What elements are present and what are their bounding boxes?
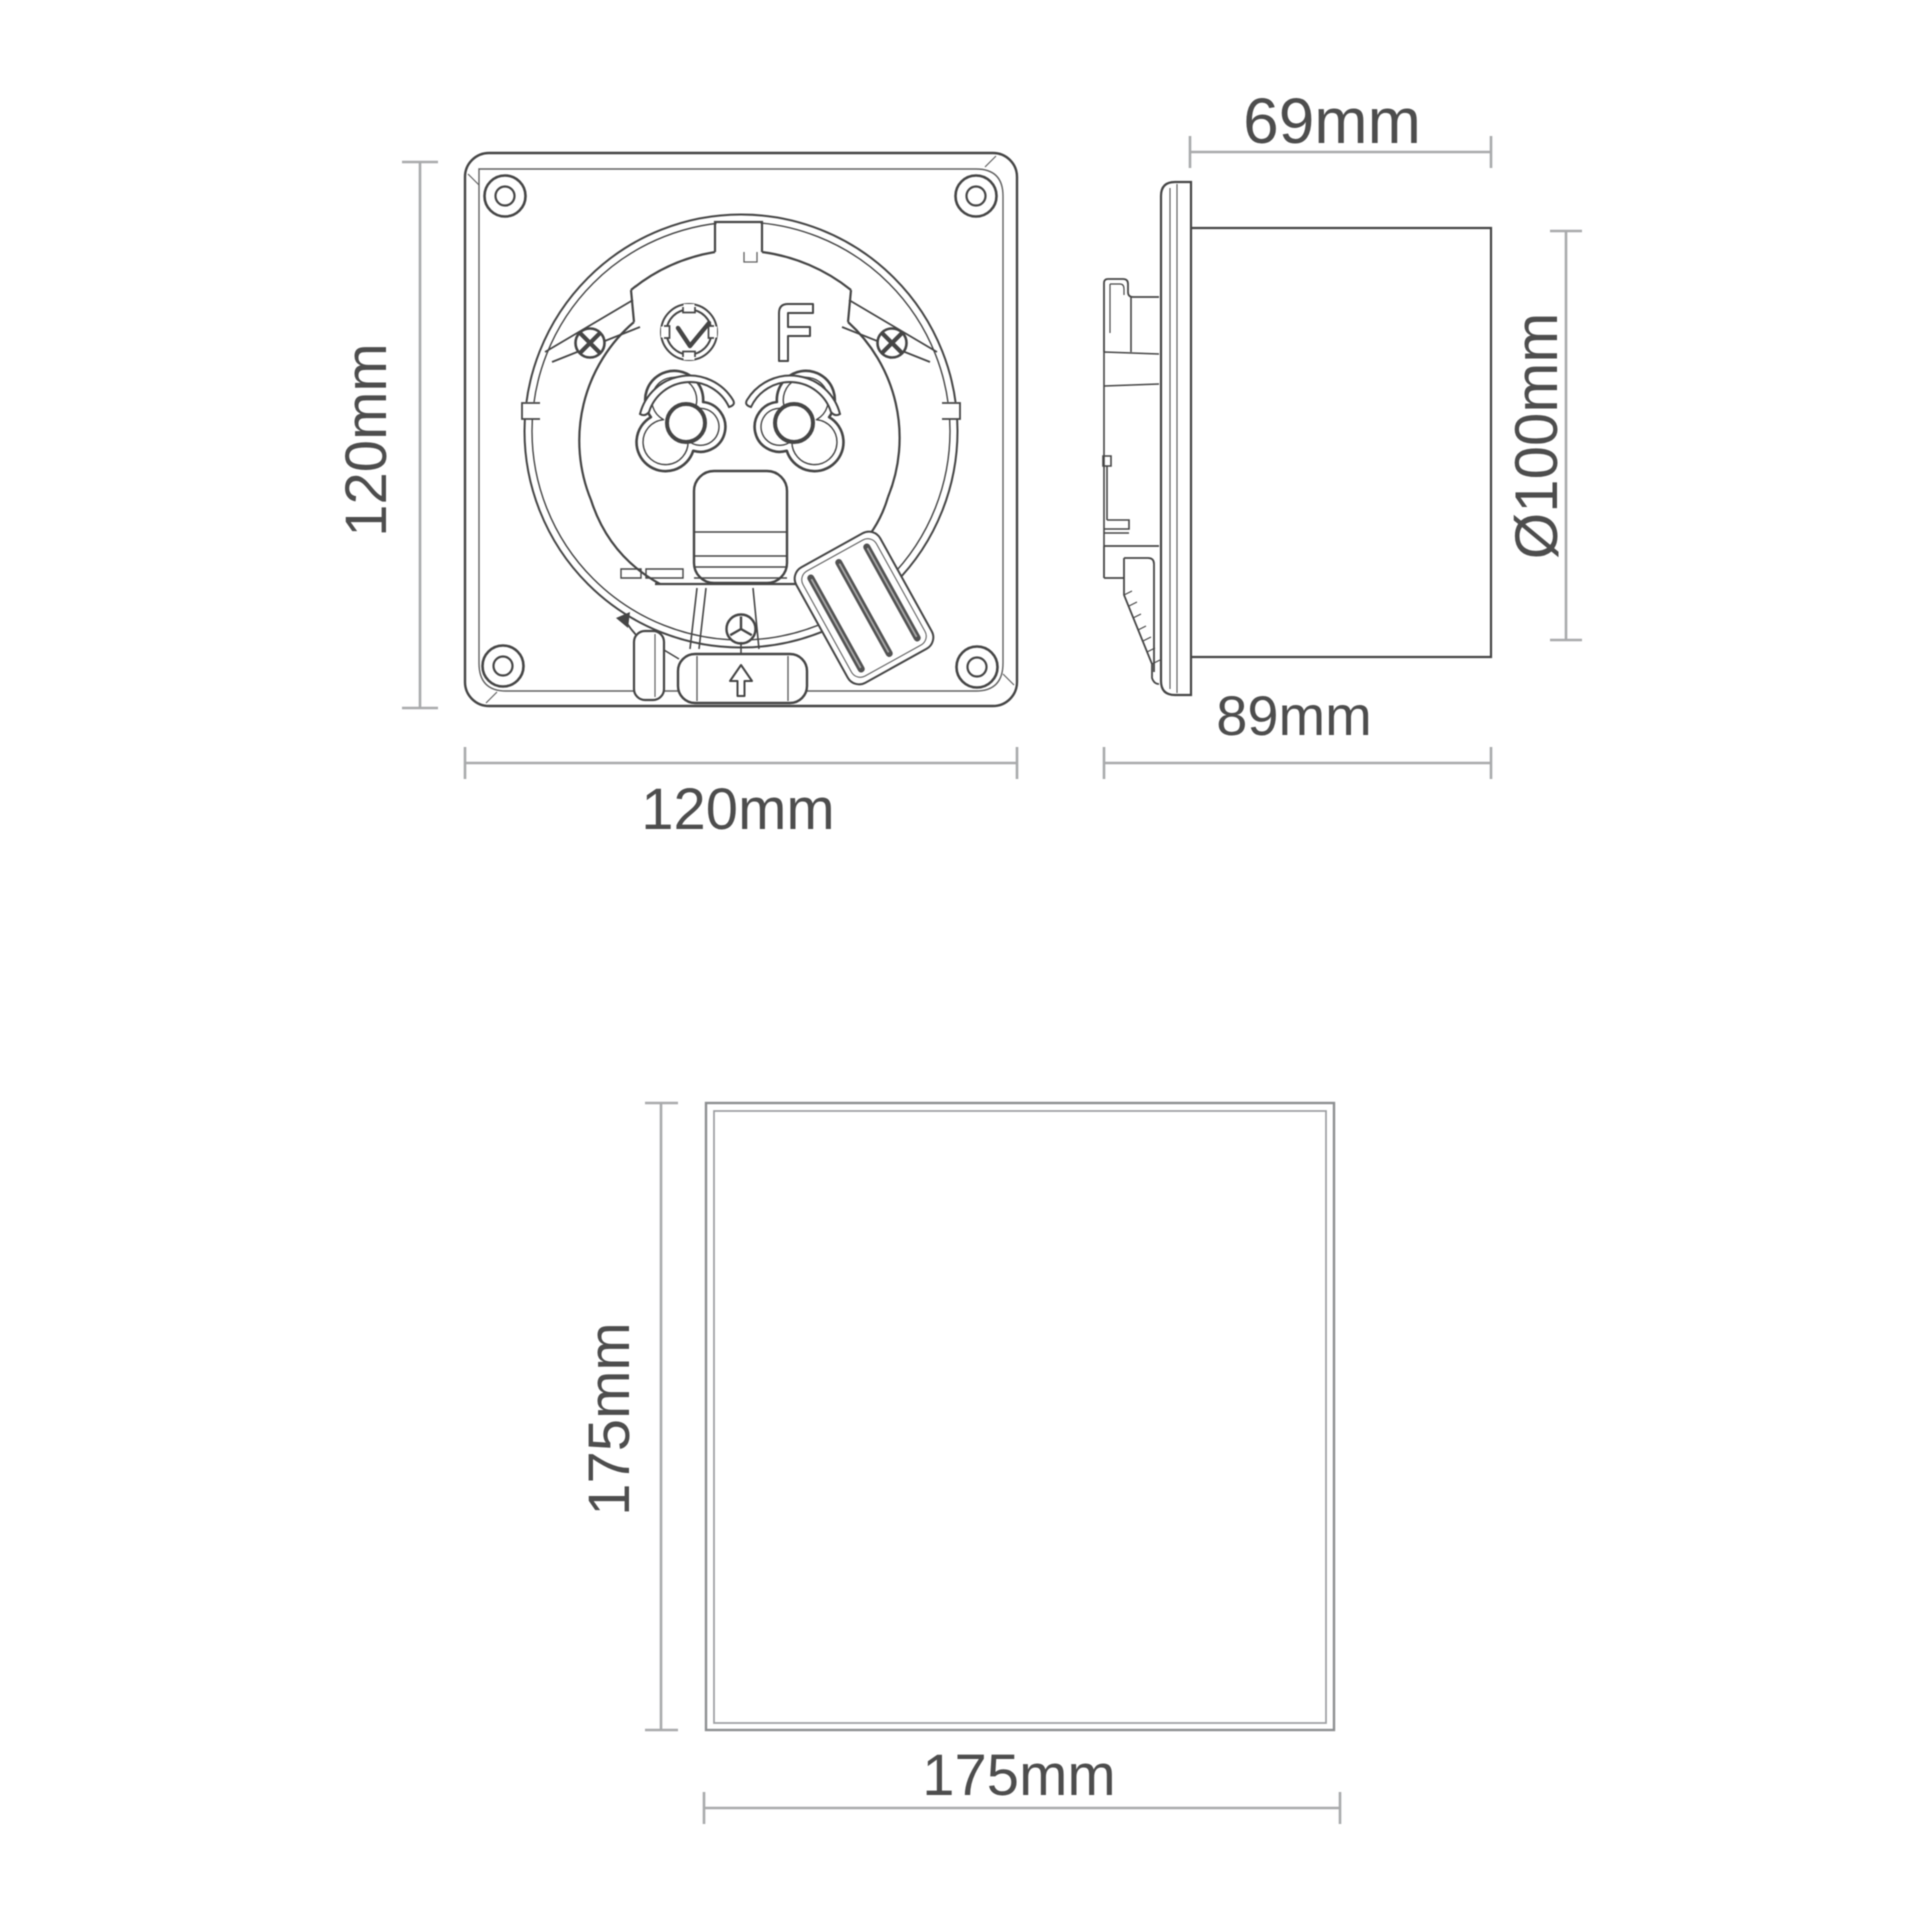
svg-text:69mm: 69mm bbox=[1243, 85, 1421, 157]
svg-text:120mm: 120mm bbox=[641, 777, 834, 842]
svg-text:Ø100mm: Ø100mm bbox=[1503, 313, 1570, 560]
svg-text:89mm: 89mm bbox=[1216, 684, 1372, 747]
svg-text:120mm: 120mm bbox=[334, 343, 399, 536]
svg-text:175mm: 175mm bbox=[577, 1322, 642, 1515]
svg-text:175mm: 175mm bbox=[922, 1743, 1115, 1808]
